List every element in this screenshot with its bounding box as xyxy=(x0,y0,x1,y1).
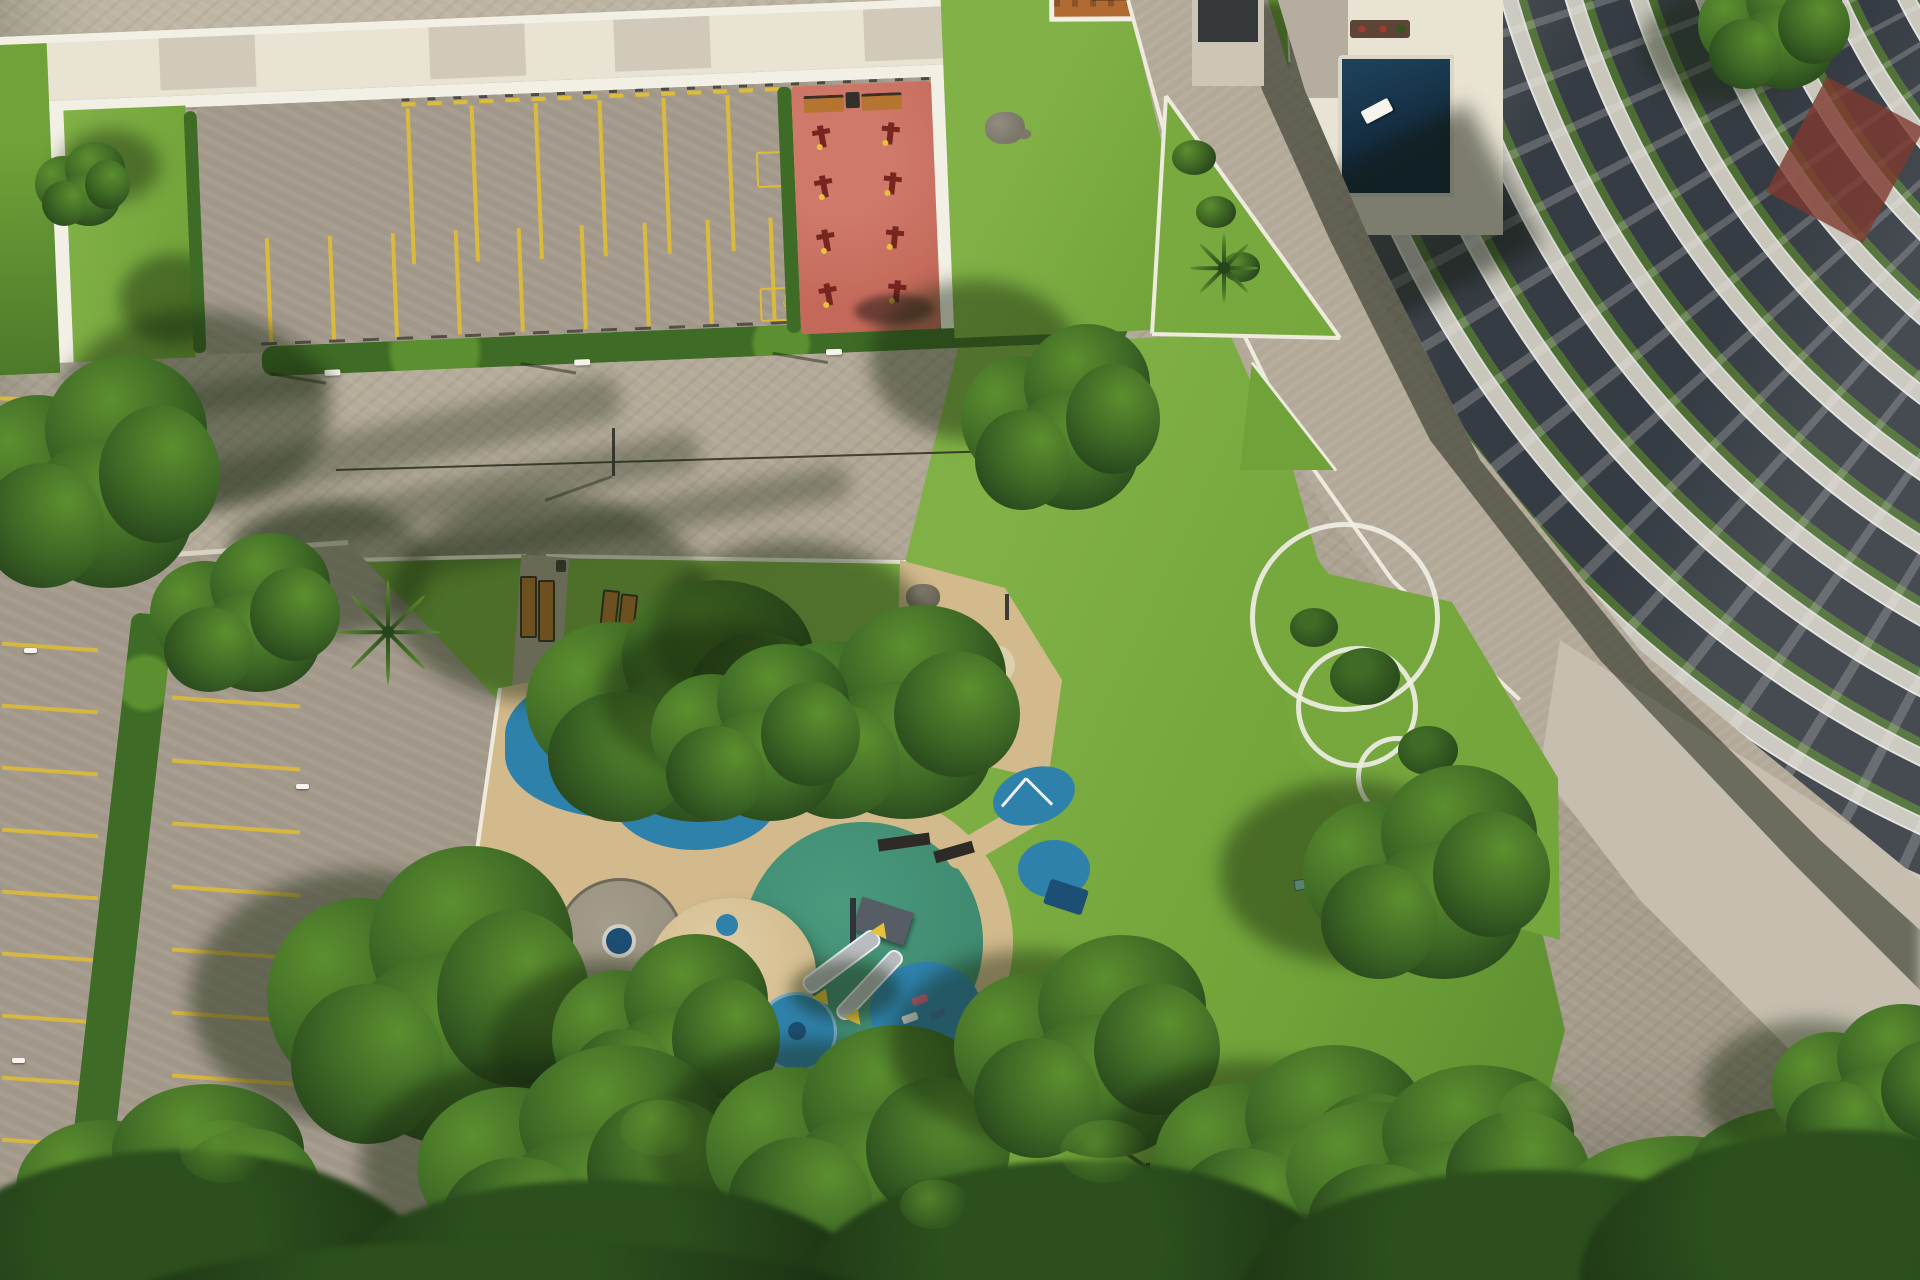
tree-canopy-blob xyxy=(164,607,254,692)
gym-equipment-seat xyxy=(886,244,893,251)
tree-canopy xyxy=(640,640,860,830)
tree-canopy-blob xyxy=(250,567,340,661)
palm-crown xyxy=(382,626,394,638)
forest-canopy-highlight xyxy=(1500,1080,1584,1139)
spiral-shrub xyxy=(1330,648,1400,705)
gym-equipment xyxy=(880,122,902,150)
tree-canopy-blob xyxy=(975,410,1070,510)
tree-canopy-blob xyxy=(666,726,765,821)
tree-canopy xyxy=(140,530,340,700)
podium-planter xyxy=(1350,20,1410,38)
tree-canopy-blob xyxy=(761,682,860,787)
palm-tree xyxy=(1186,230,1262,306)
street-lamp-head xyxy=(574,359,590,366)
tree-canopy-blob xyxy=(1433,811,1550,938)
tree-canopy xyxy=(1290,760,1550,990)
island-shrub xyxy=(1172,140,1216,175)
aerial-photo-scene: ♿♿♿♿♿♿ xyxy=(0,0,1920,1280)
street-lamp-head xyxy=(826,349,842,356)
palm-frond xyxy=(386,580,390,632)
tree-canopy xyxy=(30,140,130,230)
forest-canopy-highlight xyxy=(900,1180,970,1229)
tree-canopy-blob xyxy=(99,405,221,543)
gym-equipment-seat xyxy=(882,140,889,147)
street-lamp-head xyxy=(24,648,37,653)
gym-equipment-seat xyxy=(818,194,825,201)
spiral-shrub xyxy=(1290,608,1338,647)
palm-tree xyxy=(330,574,446,690)
tree-canopy xyxy=(950,320,1160,520)
tree-canopy-blob xyxy=(85,160,130,210)
building-courtyard-tree xyxy=(1690,0,1850,96)
palm-frond xyxy=(386,632,390,684)
gym-equipment-seat xyxy=(816,144,823,151)
forest-canopy-highlight xyxy=(620,1100,700,1156)
gym-bench xyxy=(803,94,844,113)
tower-post xyxy=(850,898,856,944)
palm-frond xyxy=(336,630,388,634)
gym-equipment xyxy=(882,172,904,200)
forest-canopy-highlight xyxy=(180,1120,270,1183)
road-equipment-cube-top xyxy=(1198,0,1258,42)
forest-canopy-highlight xyxy=(1060,1120,1150,1183)
palm-frond xyxy=(388,630,440,634)
gym-equipment-seat xyxy=(823,301,830,308)
gym-equipment xyxy=(884,226,906,254)
tree-canopy-blob xyxy=(1066,364,1161,474)
tower-shadow xyxy=(790,960,900,1020)
walkway-concrete-pad xyxy=(613,16,711,72)
meadow-rock-feature xyxy=(984,111,1025,145)
gym-bench xyxy=(861,92,902,111)
tree-canopy-blob xyxy=(894,651,1020,778)
street-lamp-head xyxy=(12,1058,25,1063)
walkway-concrete-pad xyxy=(159,35,257,91)
walkway-concrete-pad xyxy=(428,23,526,79)
street-lamp-head xyxy=(296,784,309,789)
island-shrub xyxy=(1196,196,1236,228)
palm-crown xyxy=(1218,262,1230,274)
gym-grill xyxy=(845,92,860,109)
tree-canopy-blob xyxy=(1321,864,1438,979)
gym-equipment-seat xyxy=(884,190,891,197)
tree-canopy-blob xyxy=(42,181,87,226)
gym-equipment-seat xyxy=(821,248,828,255)
building-courtyard-tree-blob xyxy=(1709,19,1781,89)
palm-frond xyxy=(387,631,427,671)
